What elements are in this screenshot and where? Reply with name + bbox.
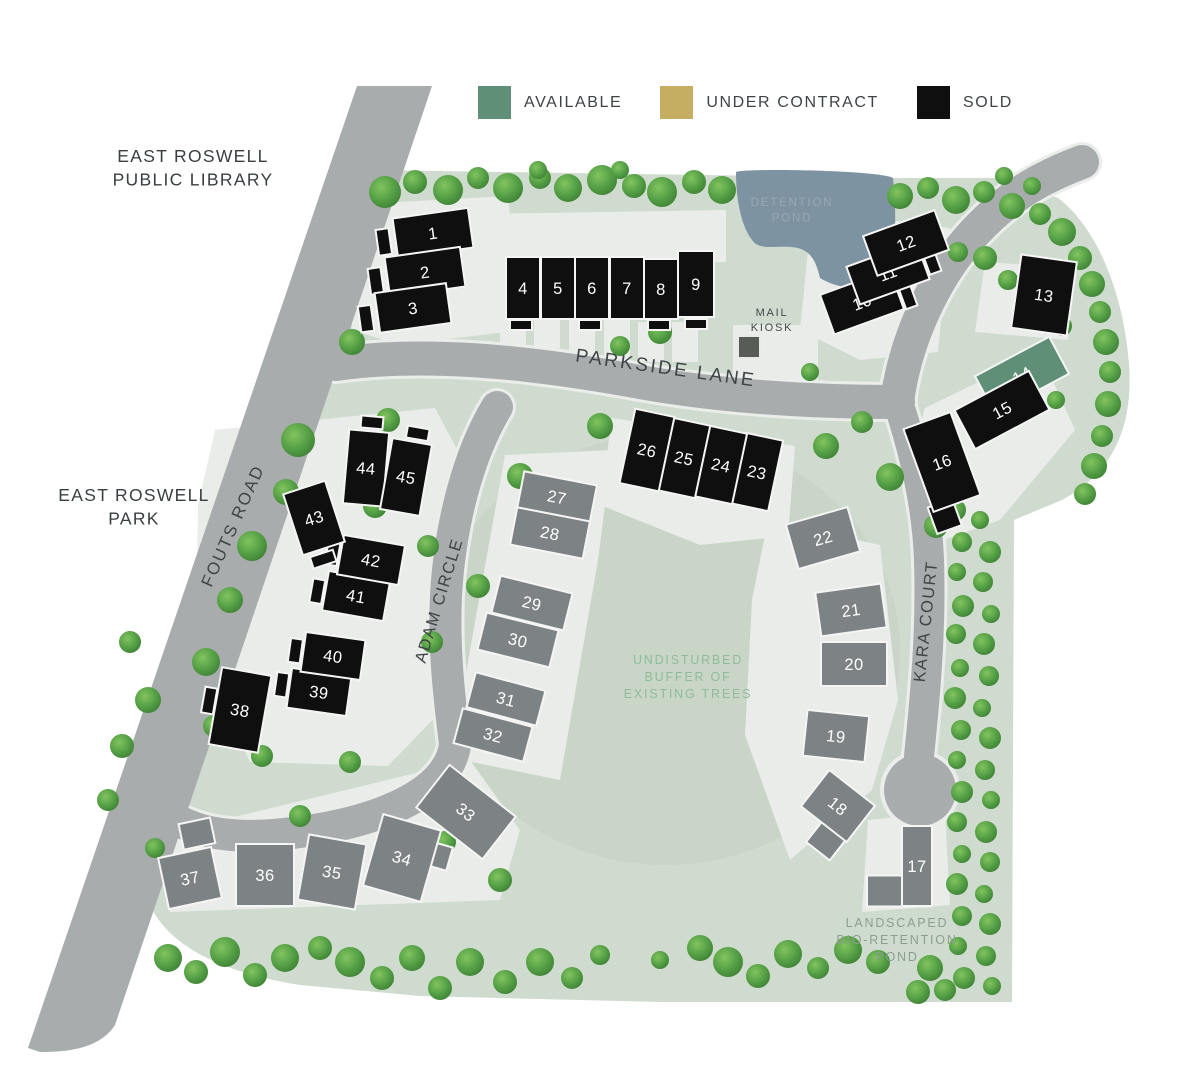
tree <box>1099 361 1121 383</box>
tree <box>946 873 968 895</box>
tree <box>952 906 972 926</box>
lot-number: 17 <box>907 858 926 876</box>
tree <box>622 174 646 198</box>
tree <box>210 937 240 967</box>
mail-kiosk-icon <box>738 336 760 358</box>
lot-21[interactable]: 21 <box>815 584 886 637</box>
tree <box>917 955 943 981</box>
lot-19[interactable]: 19 <box>803 710 869 762</box>
tree <box>1023 177 1041 195</box>
tree <box>1029 203 1051 225</box>
tree <box>339 751 361 773</box>
lot-number: 44 <box>355 459 376 479</box>
tree <box>271 944 299 972</box>
library: EAST ROSWELLPUBLIC LIBRARY <box>113 146 274 190</box>
tree <box>917 177 939 199</box>
lot-35[interactable]: 35 <box>298 834 367 909</box>
lot-20[interactable]: 20 <box>821 642 887 686</box>
tree <box>651 951 669 969</box>
legend-item-sold: SOLD <box>917 86 1013 119</box>
tree <box>851 411 873 433</box>
tree <box>807 957 829 979</box>
tree <box>975 760 995 780</box>
cul-de-sac <box>884 754 956 826</box>
lot-number: 19 <box>825 727 846 747</box>
tree <box>975 821 997 843</box>
legend-label: AVAILABLE <box>524 94 622 112</box>
tree <box>399 945 425 971</box>
tree <box>708 176 736 204</box>
park: EAST ROSWELLPARK <box>58 485 209 529</box>
site-plan-map: 1234567891011121314151617181920212223242… <box>0 0 1189 1080</box>
tree <box>887 183 913 209</box>
tree <box>813 433 839 459</box>
tree <box>1093 329 1119 355</box>
tree <box>237 531 267 561</box>
lot-number: 13 <box>1033 286 1055 307</box>
lot-number: 36 <box>255 867 274 885</box>
tree <box>1074 483 1096 505</box>
tree <box>980 852 1000 872</box>
tree <box>973 246 997 270</box>
lot-7[interactable]: 7 <box>610 257 644 319</box>
lot-number: 45 <box>395 467 417 488</box>
tree <box>554 174 582 202</box>
tree <box>979 541 1001 563</box>
tree <box>135 687 161 713</box>
tree <box>948 242 968 262</box>
tree <box>998 270 1018 290</box>
tree <box>983 977 1001 995</box>
tree <box>466 574 490 598</box>
tree <box>944 687 966 709</box>
lot-number: 4 <box>518 280 528 298</box>
tree <box>973 699 991 717</box>
lot-13[interactable]: 13 <box>1011 254 1077 335</box>
tree <box>417 535 439 557</box>
tree <box>979 727 1001 749</box>
tree <box>110 734 134 758</box>
lot-number: 35 <box>321 862 343 883</box>
tree <box>1048 218 1076 246</box>
tree <box>713 947 743 977</box>
tree <box>995 167 1013 185</box>
tree <box>529 161 547 179</box>
tree <box>243 963 267 987</box>
tree <box>953 845 971 863</box>
tree <box>951 720 971 740</box>
lot-number: 38 <box>229 700 251 721</box>
tree <box>971 511 989 529</box>
under-contract-swatch-icon <box>660 86 693 119</box>
tree <box>682 170 706 194</box>
tree <box>876 463 904 491</box>
legend-item-available: AVAILABLE <box>478 86 622 119</box>
tree <box>370 966 394 990</box>
tree <box>590 945 610 965</box>
tree <box>217 587 243 613</box>
tree <box>561 967 583 989</box>
tree <box>493 970 517 994</box>
tree <box>982 605 1000 623</box>
tree <box>433 175 463 205</box>
lot-number: 28 <box>539 523 561 544</box>
legend-item-under-contract: UNDER CONTRACT <box>660 86 879 119</box>
lot-number: 6 <box>587 280 597 298</box>
lot-number: 5 <box>553 280 563 298</box>
sold-swatch-icon <box>917 86 950 119</box>
tree <box>587 413 613 439</box>
tree <box>906 980 930 1004</box>
tree <box>428 976 452 1000</box>
tree <box>982 791 1000 809</box>
tree <box>289 805 311 827</box>
tree <box>687 935 713 961</box>
tree <box>953 967 975 989</box>
tree <box>493 173 523 203</box>
lot-6[interactable]: 6 <box>575 257 609 330</box>
tree <box>97 789 119 811</box>
lot-number: 7 <box>622 280 632 298</box>
lot-number: 9 <box>691 276 701 294</box>
tree <box>973 572 993 592</box>
lot-number: 20 <box>844 656 863 674</box>
tree <box>467 167 489 189</box>
tree <box>1079 271 1105 297</box>
tree <box>948 563 966 581</box>
lot-9[interactable]: 9 <box>678 251 714 329</box>
lot-8[interactable]: 8 <box>644 259 678 330</box>
tree <box>154 944 182 972</box>
tree <box>999 193 1025 219</box>
tree <box>335 947 365 977</box>
tree <box>308 936 332 960</box>
tree <box>774 940 802 968</box>
tree <box>1095 391 1121 417</box>
tree <box>1091 425 1113 447</box>
lot-number: 21 <box>840 601 862 622</box>
tree <box>979 666 999 686</box>
tree <box>975 885 993 903</box>
tree <box>456 948 484 976</box>
tree <box>948 751 966 769</box>
lot-number: 8 <box>656 281 666 299</box>
legend-label: UNDER CONTRACT <box>706 94 879 112</box>
tree <box>403 170 427 194</box>
lot-number: 39 <box>308 683 330 704</box>
tree <box>192 648 220 676</box>
tree <box>942 186 970 214</box>
tree <box>951 781 973 803</box>
tree <box>979 913 1001 935</box>
tree <box>976 946 996 966</box>
lot-4[interactable]: 4 <box>506 257 540 330</box>
available-swatch-icon <box>478 86 511 119</box>
tree <box>611 161 629 179</box>
tree <box>746 964 770 988</box>
tree <box>973 181 995 203</box>
lot-36[interactable]: 36 <box>236 844 294 906</box>
site-plan-svg: 1234567891011121314151617181920212223242… <box>0 0 1189 1080</box>
tree <box>951 659 969 677</box>
tree <box>1081 453 1107 479</box>
tree <box>281 423 315 457</box>
lot-number: 27 <box>546 487 568 508</box>
lot-number: 40 <box>322 647 344 668</box>
lot-number: 42 <box>360 550 382 571</box>
legend-label: SOLD <box>963 94 1013 112</box>
tree <box>1047 391 1065 409</box>
tree <box>934 979 956 1001</box>
tree <box>946 624 966 644</box>
tree <box>801 363 819 381</box>
tree <box>952 595 974 617</box>
tree <box>526 948 554 976</box>
lot-5[interactable]: 5 <box>541 257 575 319</box>
tree <box>947 812 967 832</box>
tree <box>119 631 141 653</box>
tree <box>488 868 512 892</box>
tree <box>369 176 401 208</box>
tree <box>973 633 995 655</box>
tree <box>184 960 208 984</box>
tree <box>647 177 677 207</box>
lot-number: 41 <box>345 586 367 607</box>
legend: AVAILABLE UNDER CONTRACT SOLD <box>478 86 1013 119</box>
tree <box>952 532 972 552</box>
tree <box>1089 301 1111 323</box>
tree <box>145 838 165 858</box>
